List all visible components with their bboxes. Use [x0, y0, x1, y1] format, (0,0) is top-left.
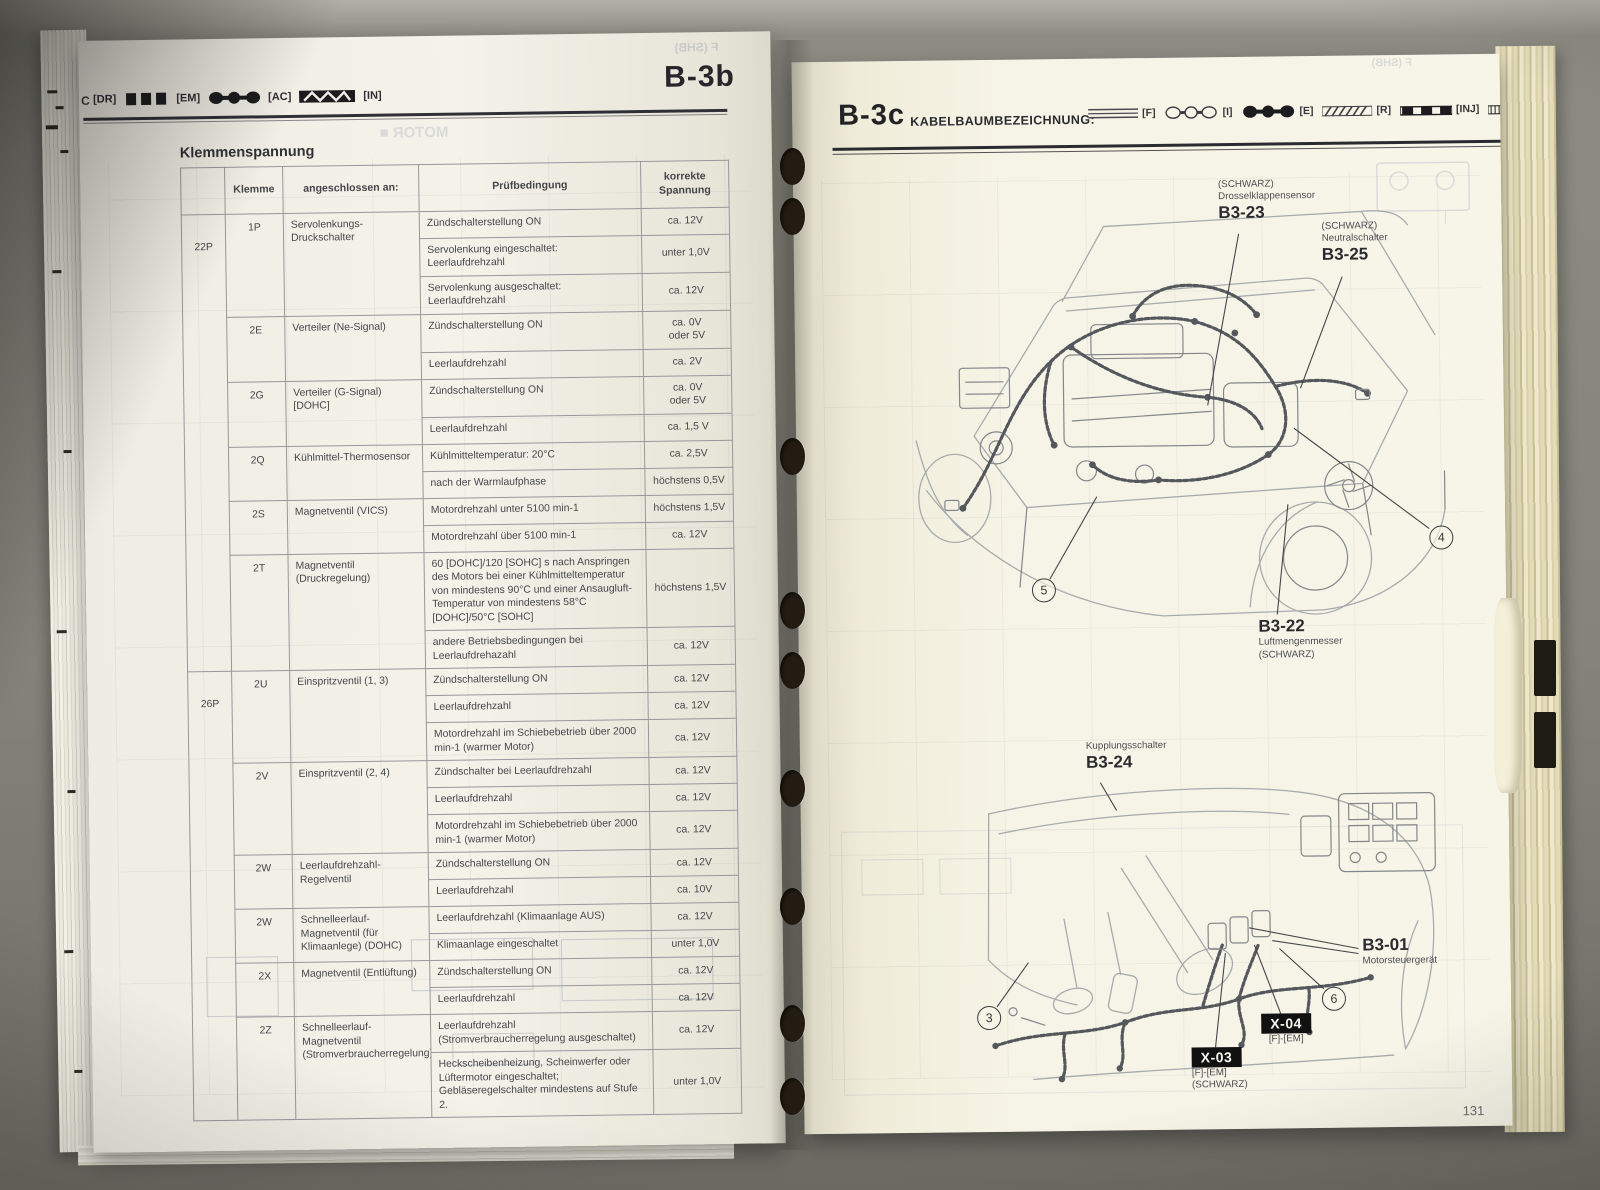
label-x-04: X-04 [F]-[EM] — [1261, 1013, 1311, 1046]
table-cell: ca. 2V — [643, 348, 731, 376]
table-cell: 60 [DOHC]/120 [SOHC] s nach Anspringen d… — [424, 549, 647, 631]
table-cell: Magnetventil (Druckregelung) — [288, 552, 426, 670]
col-header-connected: angeschlossen an: — [283, 165, 420, 213]
table-cell: ca. 0V oder 5V — [643, 310, 732, 349]
legend-label: [IN] — [363, 90, 381, 102]
table-header-row: Klemme angeschlossen an: Prüfbedingung k… — [181, 160, 730, 214]
table-cell: Zündschalter bei Leerlaufdrehzahl — [427, 758, 649, 788]
table-cell: Magnetventil (Entlüftung) — [294, 961, 431, 1017]
binder-hole — [780, 148, 805, 185]
table-cell: ca. 12V — [646, 521, 734, 549]
binder-hole — [780, 198, 805, 235]
binder-hole — [780, 592, 805, 629]
harness-ref: [F]-[EM] — [1261, 1033, 1311, 1046]
edge-index-mark — [1534, 640, 1556, 696]
connector-code: B3-01 — [1362, 935, 1437, 956]
component-name: Motorsteuergerät — [1362, 955, 1437, 968]
binder-hole — [780, 652, 805, 689]
connector-color: (SCHWARZ) — [1218, 178, 1315, 191]
table-cell: ca. 12V — [648, 665, 736, 693]
table-cell: 2U — [232, 671, 291, 764]
connector-color: (SCHWARZ) — [1321, 220, 1387, 233]
table-cell: 2V — [233, 763, 292, 856]
klemmen-table: Klemme angeschlossen an: Prüfbedingung k… — [180, 160, 742, 1122]
filled-ovals-icon — [208, 90, 260, 105]
table-cell: Servolenkung ausgeschaltet: Leerlaufdreh… — [420, 273, 643, 314]
table-cell: Zündschalterstellung ON — [421, 311, 644, 352]
binder-hole — [780, 1078, 805, 1115]
binder-hole — [780, 1005, 805, 1042]
table-cell: Servolenkungs-Druckschalter — [283, 211, 420, 316]
binder-hole — [780, 770, 805, 807]
callout-5: 5 — [1032, 578, 1056, 602]
table-cell: ca. 12V — [652, 1011, 741, 1050]
label-b3-22: B3-22 Luftmengenmesser (SCHWARZ) — [1258, 616, 1342, 662]
table-cell: ca. 12V — [642, 272, 731, 311]
table-cell: ca. 12V — [649, 784, 737, 812]
table-cell: ca. 10V — [650, 876, 738, 904]
table-cell: Zündschalterstellung ON — [426, 666, 648, 696]
connector-code: B3-25 — [1322, 245, 1388, 266]
col-header-klemme: Klemme — [225, 167, 284, 214]
callout-4: 4 — [1429, 525, 1453, 549]
table-cell: Leerlaufdrehzahl-Regelventil — [292, 853, 429, 909]
connector-code: B3-24 — [1086, 752, 1167, 773]
table-cell: unter 1,0V — [653, 1049, 742, 1115]
label-b3-01: B3-01 Motorsteuergerät — [1362, 935, 1437, 969]
table-cell: 2Z — [236, 1017, 295, 1121]
connector-code-box: X-04 — [1261, 1013, 1311, 1034]
table-cell: Zündschalterstellung ON — [422, 376, 645, 417]
leader-lines — [791, 54, 1512, 1135]
table-cell: Leerlaufdrehzahl — [429, 877, 651, 907]
table-cell: Zündschalterstellung ON — [428, 850, 650, 880]
table-cell: ca. 12V — [648, 719, 737, 758]
table-cell: Heckscheibenheizung, Scheinwerfer oder L… — [431, 1050, 654, 1118]
photo-open-workshop-manual: F (SHB) MOTOR ■ C B-3b [DR] [EM] [AC] [I… — [0, 0, 1600, 1190]
table-cell: nach der Warmlaufphase — [423, 468, 645, 498]
table-cell: Schnelleerlauf-Magnetventil (Stromverbra… — [294, 1015, 431, 1120]
table-cell: Magnetventil (VICS) — [287, 498, 424, 554]
left-page-id: B-3b — [664, 60, 735, 95]
table-cell: ca. 12V — [648, 692, 736, 720]
table-cell: Leerlaufdrehzahl — [427, 785, 649, 815]
table-cell: Einspritzventil (2, 4) — [291, 761, 428, 855]
left-page: F (SHB) MOTOR ■ C B-3b [DR] [EM] [AC] [I… — [78, 31, 785, 1153]
table-cell: Motordrehzahl im Schiebebetrieb über 200… — [428, 812, 651, 853]
component-name: Kupplungsschalter — [1086, 740, 1167, 753]
legend-label: [EM] — [176, 92, 200, 104]
beam-bars-icon — [124, 92, 168, 107]
label-b3-25: (SCHWARZ) Neutralschalter B3-25 — [1321, 220, 1387, 266]
component-name: Luftmengenmesser — [1259, 636, 1343, 649]
table-cell: Leerlaufdrehzahl — [426, 693, 648, 723]
connector-code: B3-23 — [1218, 202, 1315, 224]
page-corner-letter: C — [81, 94, 90, 108]
table-cell: andere Betriebsbedingungen bei Leerlaufd… — [425, 628, 648, 669]
binder-hole — [780, 438, 805, 475]
table-cell: ca. 12V — [652, 984, 740, 1012]
table-cell: unter 1,0V — [651, 930, 739, 958]
table-cell: 2S — [229, 500, 288, 555]
label-b3-23: (SCHWARZ) Drosselklappensensor B3-23 — [1218, 178, 1315, 224]
table-cell: ca. 2,5V — [644, 440, 732, 468]
col-header-group — [181, 167, 226, 214]
edge-index-mark — [1534, 712, 1556, 768]
component-name: Neutralschalter — [1322, 232, 1388, 245]
table-cell: Zündschalterstellung ON — [419, 208, 641, 238]
table-row: 2TMagnetventil (Druckregelung)60 [DOHC]/… — [186, 548, 735, 634]
table-cell: 2Q — [228, 446, 287, 501]
table-cell: 2W — [235, 909, 294, 964]
table-cell: unter 1,0V — [642, 234, 731, 273]
connector-color: (SCHWARZ) — [1192, 1079, 1248, 1092]
table-cell: Zündschalterstellung ON — [430, 958, 652, 988]
zigzag-band-icon — [299, 89, 355, 104]
table-cell: ca. 12V — [652, 957, 740, 985]
label-b3-24: Kupplungsschalter B3-24 — [1086, 740, 1167, 774]
table-cell: 2X — [236, 963, 295, 1018]
component-name: Drosselklappensensor — [1218, 190, 1315, 203]
table-cell: Kühlmitteltemperatur: 20°C — [422, 441, 644, 471]
table-cell: Leerlaufdrehzahl — [422, 414, 644, 444]
table-cell: 1P — [225, 213, 284, 317]
table-cell: höchstens 1,5V — [645, 494, 733, 522]
table-cell: Leerlaufdrehzahl — [421, 349, 643, 379]
page-number: 131 — [1463, 1103, 1485, 1118]
table-cell: Einspritzventil (1, 3) — [290, 669, 427, 763]
page-curl — [1494, 598, 1522, 793]
table-cell: Servolenkung eingeschaltet: Leerlaufdreh… — [420, 235, 643, 276]
label-x-03: X-03 [F]-[EM] (SCHWARZ) — [1192, 1047, 1248, 1092]
legend-label: [AC] — [268, 91, 291, 103]
callout-3: 3 — [977, 1006, 1001, 1030]
table-cell: 2W — [234, 855, 293, 910]
table-cell: Motordrehzahl über 5100 min-1 — [424, 522, 646, 552]
harness-ref: [F]-[EM] — [1192, 1067, 1248, 1080]
table-cell: Leerlaufdrehzahl (Stromverbraucherregelu… — [430, 1012, 653, 1053]
col-header-condition: Prüfbedingung — [419, 162, 642, 212]
table-cell: höchstens 1,5V — [646, 548, 735, 628]
callout-6: 6 — [1322, 987, 1346, 1011]
col-header-voltage: korrekte Spannung — [641, 160, 730, 208]
table-cell: Motordrehzahl im Schiebebetrieb über 200… — [426, 720, 649, 761]
table-cell: Leerlaufdrehzahl — [430, 985, 652, 1015]
table-cell: ca. 12V — [647, 627, 736, 666]
connector-color: (SCHWARZ) — [1259, 648, 1343, 661]
legend-label: [DR] — [93, 93, 116, 105]
table-cell: 2G — [228, 381, 287, 447]
table-cell: ca. 12V — [650, 849, 738, 877]
binder-hole — [780, 888, 805, 925]
table-cell: Verteiler (G-Signal) [DOHC] — [286, 379, 423, 446]
table-cell: Schnelleerlauf-Magnetventil (für Klimaan… — [293, 907, 430, 963]
table-cell: 22P — [181, 214, 231, 672]
table-title: Klemmenspannung — [180, 144, 315, 162]
table-cell: ca. 12V — [651, 903, 739, 931]
table-cell: 26P — [188, 672, 238, 1122]
table-cell: 2E — [227, 316, 286, 382]
table-cell: 2T — [230, 554, 290, 671]
table-cell: ca. 0V oder 5V — [644, 375, 733, 414]
table-cell: Verteiler (Ne-Signal) — [285, 314, 422, 381]
connector-code-box: X-03 — [1192, 1047, 1242, 1068]
right-page: F (SHB) B-3c KABELBAUMBEZEICHNUNG: [F] — [791, 54, 1512, 1135]
table-cell: ca. 1,5 V — [644, 413, 732, 441]
table-cell: höchstens 0,5V — [645, 467, 733, 495]
table-cell: Kühlmittel-Thermosensor — [286, 444, 423, 500]
table-cell: ca. 12V — [649, 757, 737, 785]
connector-code: B3-22 — [1258, 616, 1342, 637]
table-cell: ca. 12V — [641, 207, 729, 235]
table-cell: Klimaanlage eingeschaltet — [429, 931, 651, 961]
table-cell: Motordrehzahl unter 5100 min-1 — [423, 495, 645, 525]
table-cell: ca. 12V — [650, 811, 739, 850]
bleed-through-text: F (SHB) — [674, 40, 718, 55]
bleed-through-text: MOTOR ■ — [379, 124, 448, 142]
table-cell: Leerlaufdrehzahl (Klimaanlage AUS) — [429, 904, 651, 934]
harness-legend-left: [DR] [EM] [AC] [IN] — [93, 89, 382, 107]
